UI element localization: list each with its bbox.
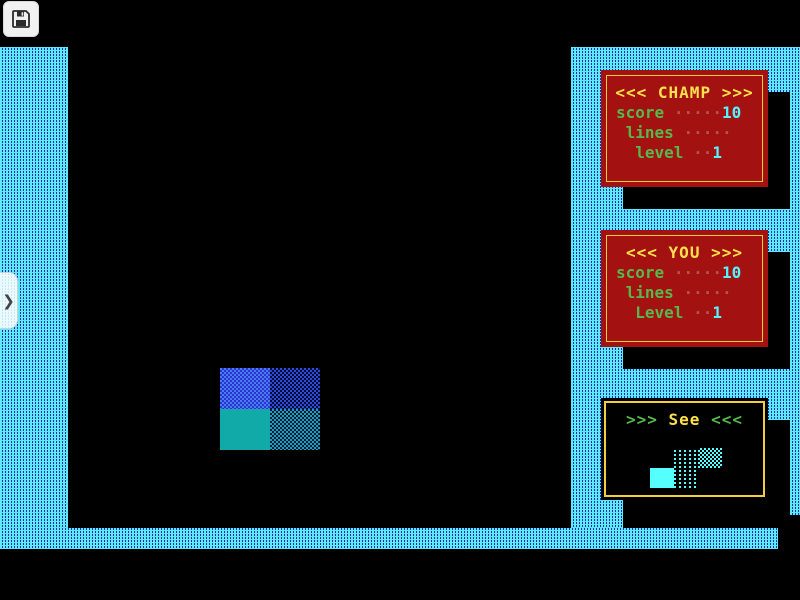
you-score-row: score ·····10	[602, 263, 767, 283]
dots: ·····	[683, 283, 731, 302]
level-value: 1	[712, 303, 722, 322]
champ-level-row: level ··1	[602, 143, 767, 163]
score-value: 10	[722, 263, 741, 282]
score-label: score	[616, 263, 664, 282]
champ-score-row: score ·····10	[602, 103, 767, 123]
champ-lines-row: lines ·····	[602, 123, 767, 143]
dots: ·····	[683, 123, 731, 142]
field-piece-cell	[270, 368, 320, 409]
score-value: 10	[722, 103, 741, 122]
game-screen: <<< CHAMP >>> score ·····10 lines ····· …	[0, 0, 800, 600]
dots: ·····	[674, 103, 722, 122]
you-title: <<< YOU >>>	[602, 243, 767, 263]
next-piece-cell	[674, 468, 698, 488]
dots: ·····	[674, 263, 722, 282]
field-border-bottom	[0, 528, 778, 549]
you-level-row: Level ··1	[602, 303, 767, 323]
field-piece-cell	[220, 409, 270, 450]
champ-panel: <<< CHAMP >>> score ·····10 lines ····· …	[601, 70, 768, 187]
see-panel: >>> See <<<	[601, 398, 768, 500]
champ-title: <<< CHAMP >>>	[602, 83, 767, 103]
see-word: See	[658, 410, 711, 429]
see-arrows-left: >>>	[626, 410, 658, 429]
floppy-disk-icon	[11, 9, 31, 29]
see-arrows-right: <<<	[711, 410, 743, 429]
field-piece-cell	[270, 409, 320, 450]
you-lines-row: lines ·····	[602, 283, 767, 303]
dots: ··	[693, 303, 712, 322]
level-value: 1	[712, 143, 722, 162]
score-label: score	[616, 103, 664, 122]
next-piece-cell	[698, 448, 722, 468]
chevron-right-icon: ❯	[2, 292, 15, 310]
save-button[interactable]	[3, 1, 39, 37]
next-piece-cell	[674, 448, 698, 468]
sidebar-expand-tab[interactable]: ❯	[0, 272, 18, 329]
field-piece-cell	[220, 368, 270, 409]
you-panel: <<< YOU >>> score ·····10 lines ····· Le…	[601, 230, 768, 347]
level-label: Level	[616, 303, 683, 322]
lines-label: lines	[616, 283, 674, 302]
see-title: >>> See <<<	[601, 410, 768, 430]
level-label: level	[616, 143, 683, 162]
dots: ··	[693, 143, 712, 162]
lines-label: lines	[616, 123, 674, 142]
next-piece-cell	[650, 468, 674, 488]
